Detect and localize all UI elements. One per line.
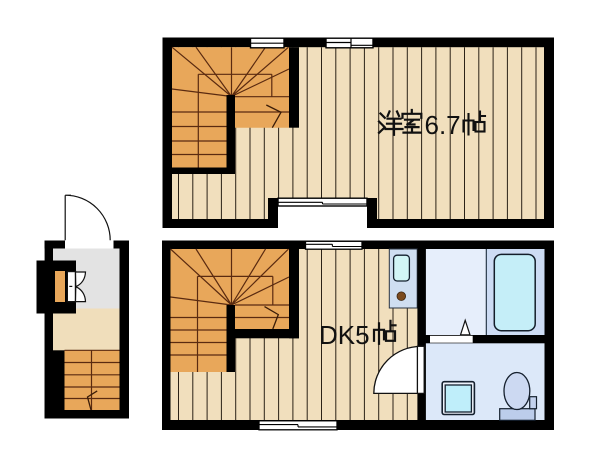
svg-text:6.7: 6.7 [425,110,461,140]
svg-text:DK5: DK5 [319,320,370,350]
